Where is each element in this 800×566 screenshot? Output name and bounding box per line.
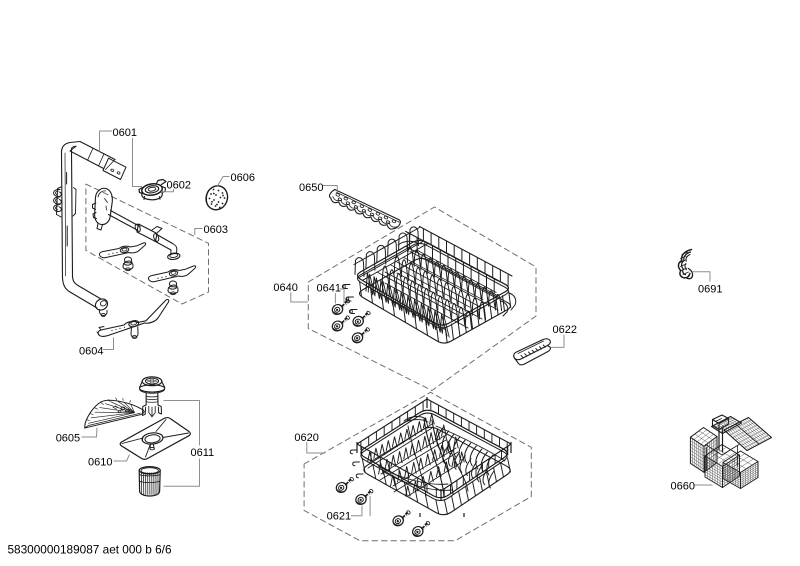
- svg-text:0650: 0650: [299, 182, 323, 194]
- svg-text:0606: 0606: [231, 172, 255, 184]
- svg-text:0621: 0621: [327, 511, 351, 523]
- svg-text:0691: 0691: [698, 284, 722, 296]
- svg-text:0622: 0622: [553, 324, 577, 336]
- svg-text:0620: 0620: [294, 432, 318, 444]
- svg-text:0640: 0640: [273, 282, 297, 294]
- svg-text:0660: 0660: [671, 481, 695, 493]
- svg-text:0610: 0610: [88, 457, 112, 469]
- svg-text:0605: 0605: [56, 432, 80, 444]
- svg-text:0602: 0602: [167, 179, 191, 191]
- svg-text:58300000189087 aet 000 b 6/6: 58300000189087 aet 000 b 6/6: [8, 543, 172, 557]
- svg-text:0611: 0611: [191, 447, 215, 459]
- svg-text:0601: 0601: [113, 127, 137, 139]
- svg-text:0603: 0603: [204, 224, 228, 236]
- svg-text:0604: 0604: [79, 346, 103, 358]
- svg-text:0641: 0641: [317, 283, 341, 295]
